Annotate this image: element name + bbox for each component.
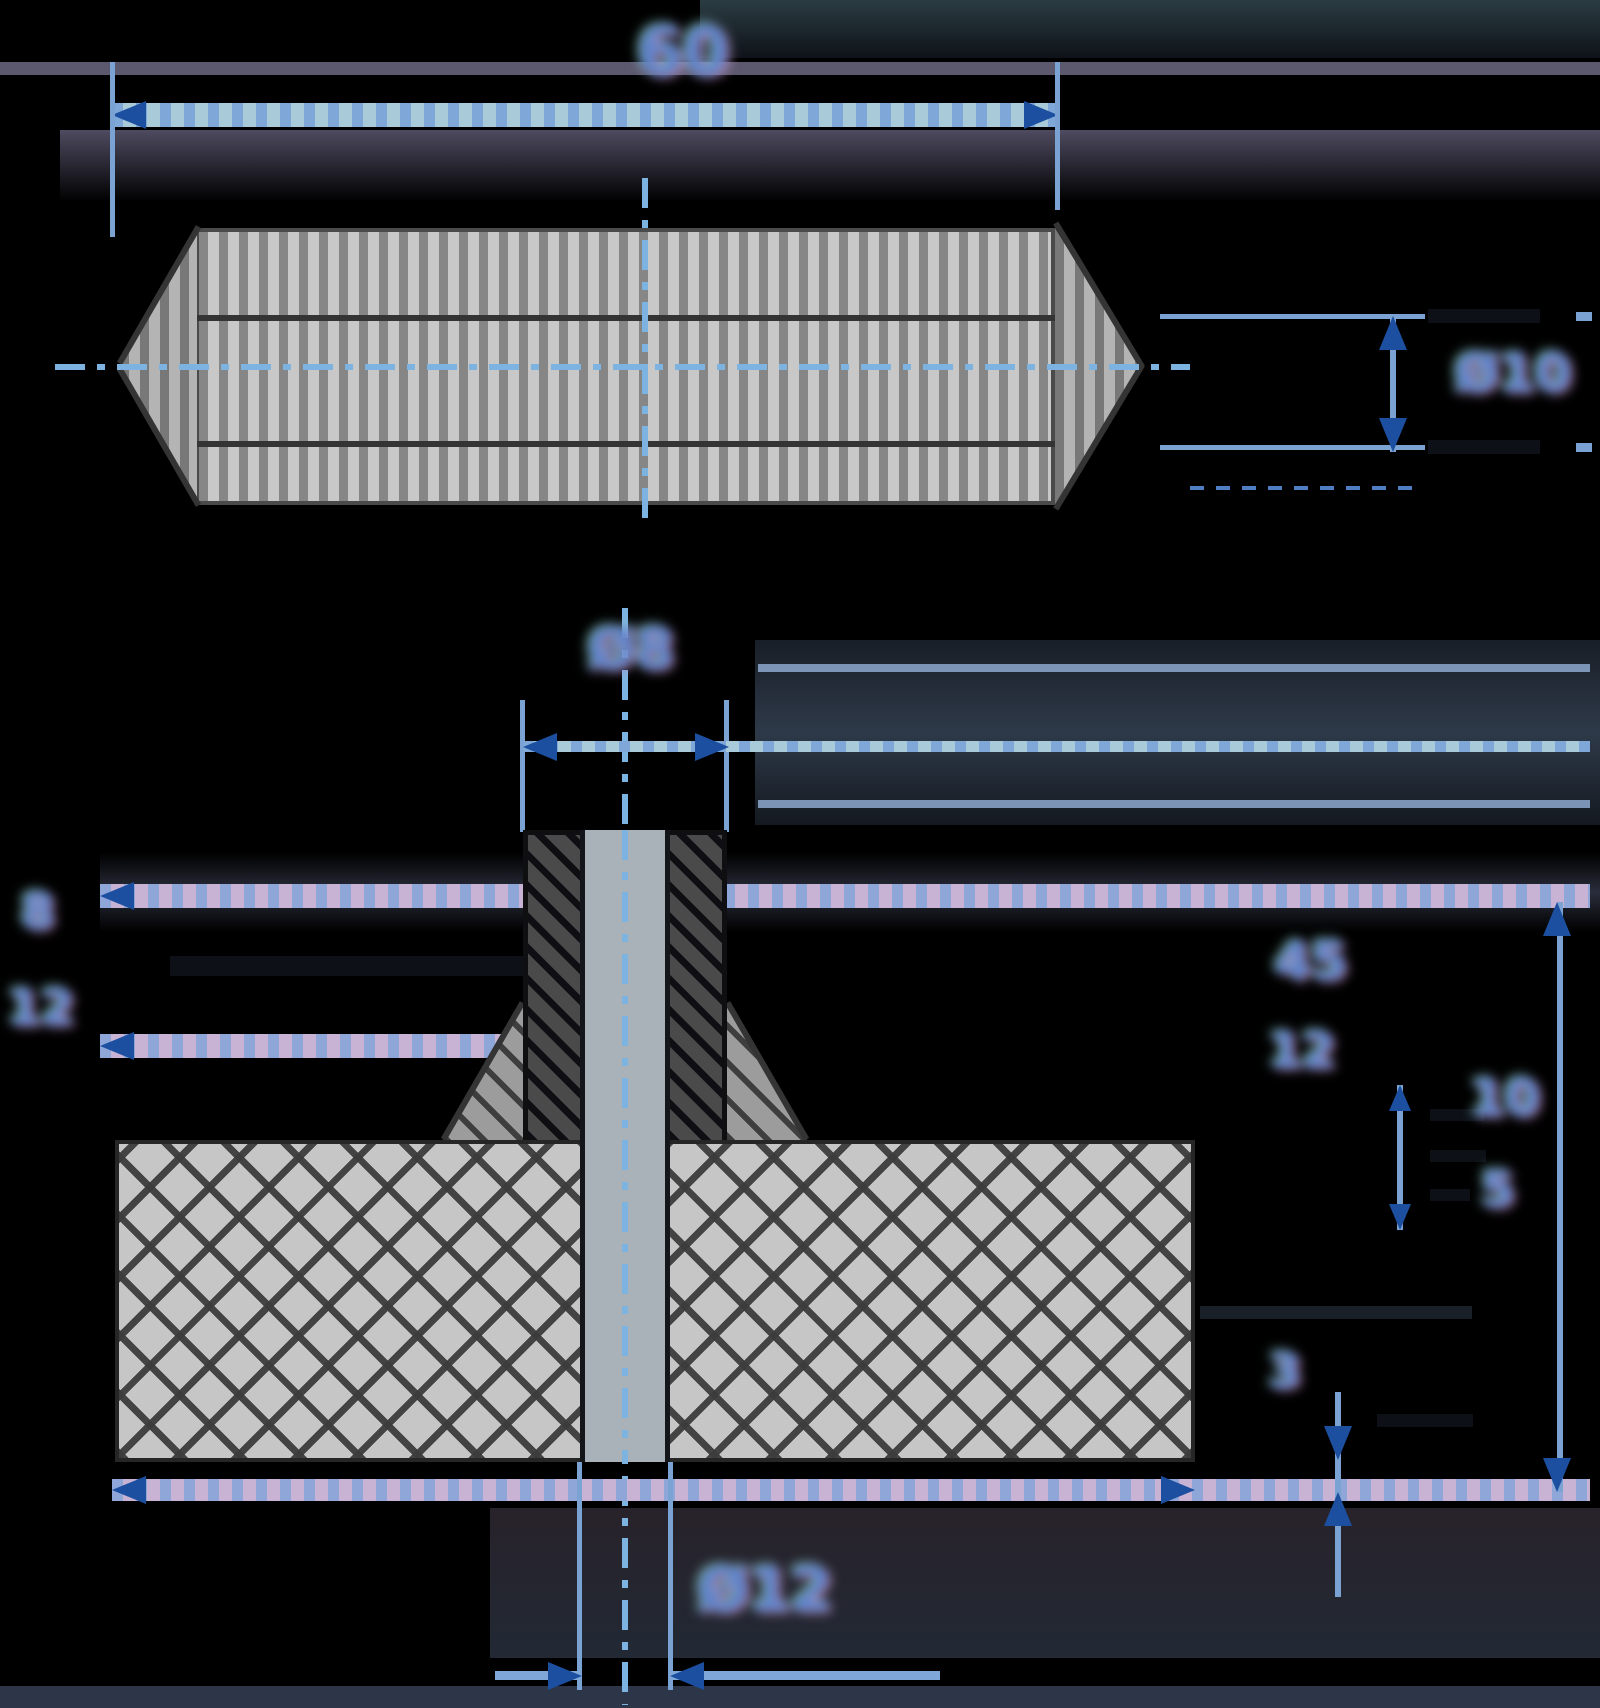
pin-centerline-horizontal	[55, 364, 1190, 370]
pin-centerline-vertical	[642, 178, 648, 528]
flange-width-arrow-left-icon	[112, 1476, 146, 1504]
upper-left-dimension-line	[100, 884, 1590, 908]
lower-left-arrow-icon	[100, 1032, 134, 1060]
length-arrow-left-icon	[112, 101, 146, 129]
overall-height-arrow-up-icon	[1543, 902, 1571, 936]
diameter-extension-upper-black	[1428, 309, 1540, 323]
overall-height-dimension-line	[1557, 902, 1563, 1492]
bore-diameter-text: Ø12	[660, 1540, 870, 1640]
diameter-dimension-text: Ø10	[1443, 336, 1583, 412]
halo-bottom-edge	[0, 1686, 1600, 1708]
overall-height-arrow-down-icon	[1543, 1458, 1571, 1492]
hidden-dashed-line	[1190, 486, 1412, 490]
halo-line	[0, 62, 1600, 75]
left-black-extension-bar	[170, 956, 565, 976]
left-upper-text: 8	[6, 878, 70, 946]
right-upper-text: 45	[1248, 918, 1374, 1006]
bore-arrow-left-icon	[548, 1662, 582, 1690]
stem-arrow-right-icon	[695, 733, 729, 761]
pin-inner-edge-upper	[195, 315, 1055, 321]
right-mid-arrow-down-icon	[1389, 1204, 1411, 1230]
bore-extension-left	[577, 1462, 582, 1690]
flange-width-dimension-line	[112, 1479, 1590, 1501]
extension-line-left	[110, 62, 115, 237]
halo-lower-right	[490, 1508, 1600, 1658]
technical-drawing-canvas: 60 Ø10	[0, 0, 1600, 1708]
bore-centerline	[622, 830, 628, 1462]
right-extension-line-a	[758, 664, 1590, 672]
length-dimension-text: 60	[598, 4, 768, 99]
right-mid-secondary-text: 5	[1460, 1152, 1536, 1228]
stem-dimension-line	[523, 741, 1590, 752]
right-mid-arrow-up-icon	[1389, 1085, 1411, 1111]
stem-extension-left	[520, 700, 525, 832]
tick-right-upper	[1576, 312, 1592, 321]
right-lower-arrow-down-icon	[1324, 1426, 1352, 1460]
right-lower-arrow-up-icon	[1324, 1492, 1352, 1526]
tick-right-lower	[1576, 443, 1592, 452]
bore-dimension-line-right	[670, 1671, 940, 1680]
halo-below-dimension	[60, 130, 1600, 202]
stem-diameter-text: Ø8	[556, 608, 706, 692]
right-lower-black-bar	[1377, 1414, 1473, 1427]
halo-top	[700, 0, 1600, 58]
left-lower-text: 12	[2, 974, 80, 1042]
right-mid-text: 10	[1455, 1058, 1555, 1138]
flange-width-arrow-right-icon	[1161, 1476, 1195, 1504]
stem-wall-right	[670, 830, 727, 1140]
extension-line-right	[1055, 62, 1060, 210]
diameter-arrow-up-icon	[1379, 316, 1407, 350]
length-dimension-line	[112, 103, 1058, 127]
upper-left-arrow-icon	[100, 882, 134, 910]
right-lower-text: 3	[1250, 1338, 1320, 1404]
right-upper-secondary-text: 12	[1252, 1018, 1352, 1084]
length-arrow-right-icon	[1024, 101, 1058, 129]
stem-arrow-left-icon	[523, 733, 557, 761]
diameter-extension-lower-black	[1428, 440, 1540, 454]
bore-arrow-right-icon	[670, 1662, 704, 1690]
right-extension-line-b	[758, 800, 1590, 808]
diameter-arrow-down-icon	[1379, 418, 1407, 452]
pin-inner-edge-lower	[195, 441, 1055, 447]
right-lower-extension-line	[1200, 1306, 1472, 1319]
stem-wall-left	[523, 830, 580, 1140]
stem-extension-right	[724, 700, 729, 832]
